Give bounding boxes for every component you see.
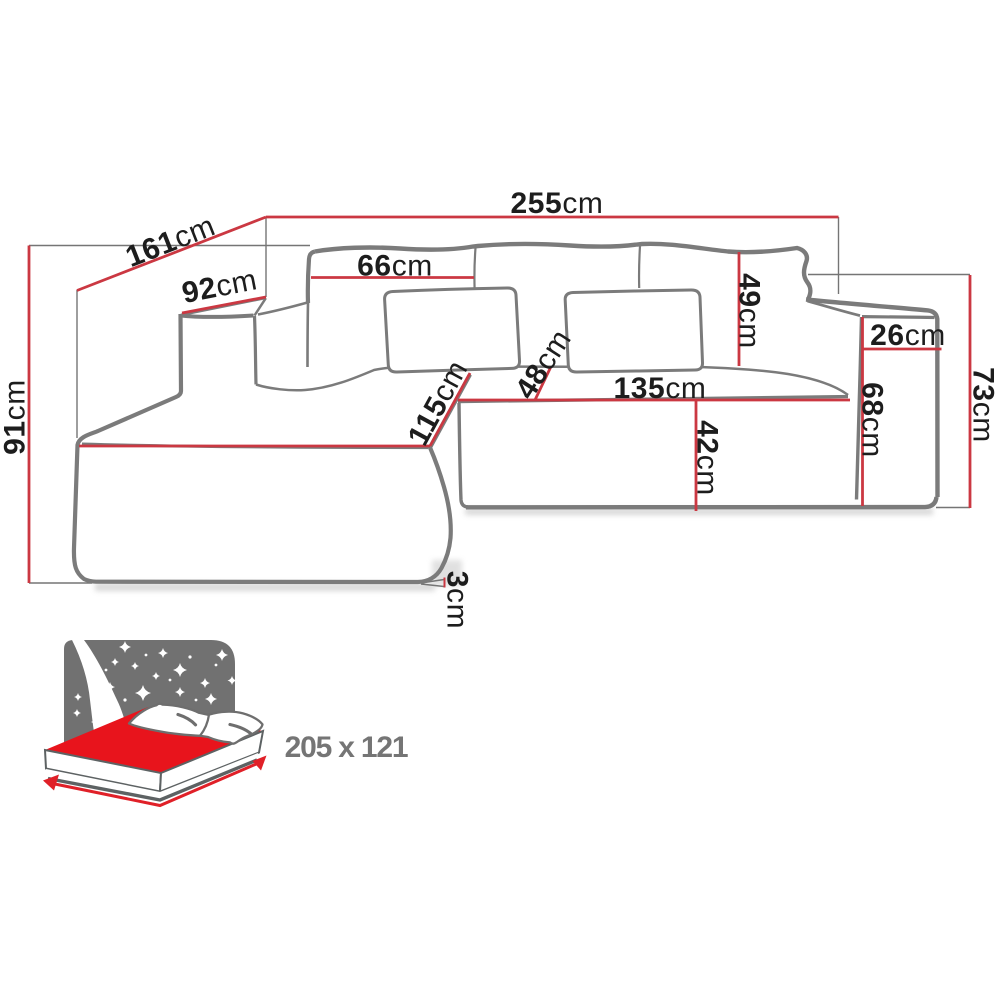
svg-text:66cm: 66cm (357, 250, 433, 283)
svg-text:3cm: 3cm (441, 571, 474, 630)
svg-text:68cm: 68cm (856, 382, 889, 458)
svg-text:91cm: 91cm (0, 379, 32, 455)
svg-text:49cm: 49cm (733, 273, 766, 349)
svg-text:73cm: 73cm (967, 367, 1000, 443)
svg-text:42cm: 42cm (691, 420, 724, 496)
svg-text:255cm: 255cm (510, 187, 603, 220)
svg-text:26cm: 26cm (870, 319, 946, 352)
svg-text:205 x 121: 205 x 121 (285, 731, 408, 764)
svg-text:135cm: 135cm (613, 372, 706, 405)
